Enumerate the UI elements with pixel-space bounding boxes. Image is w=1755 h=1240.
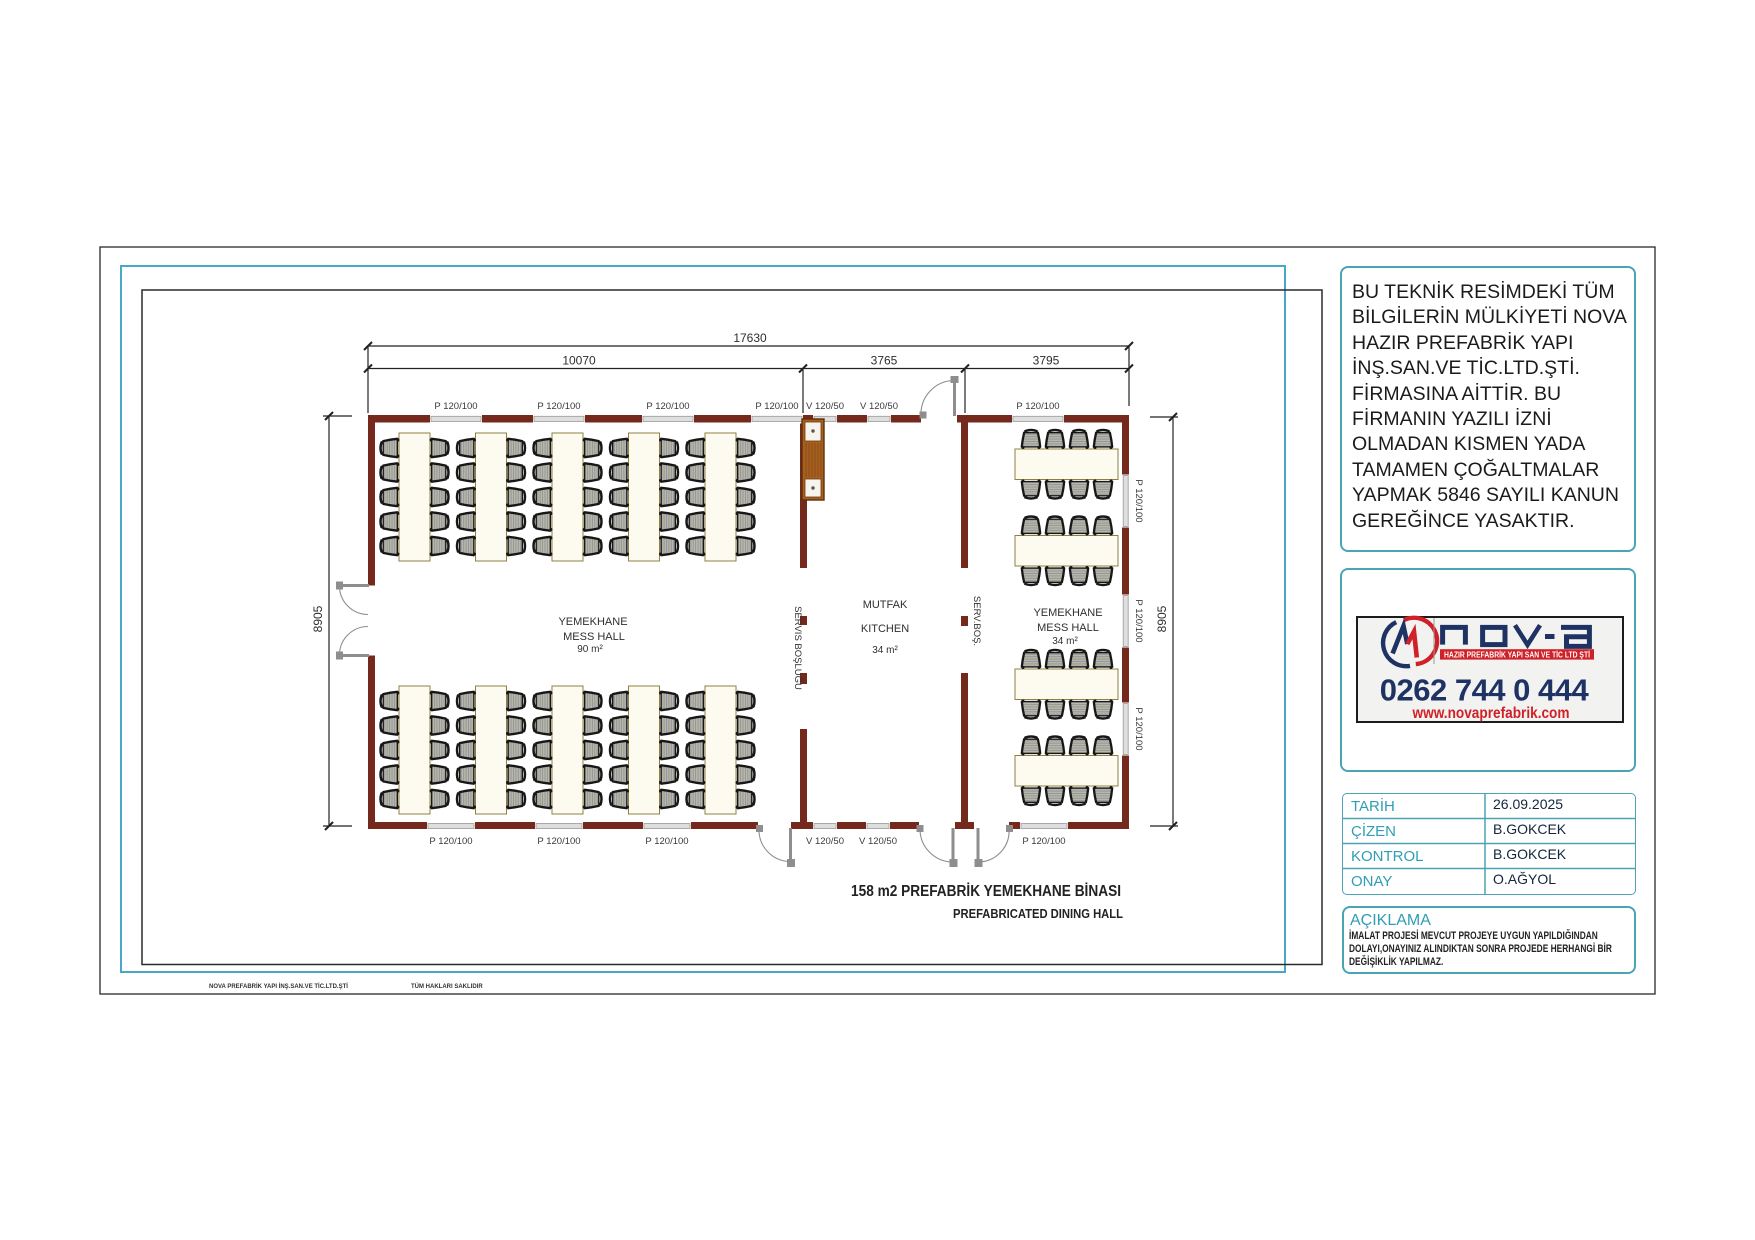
svg-text:17630: 17630 bbox=[733, 331, 767, 345]
svg-text:8905: 8905 bbox=[1155, 605, 1169, 632]
svg-text:MUTFAK: MUTFAK bbox=[863, 599, 908, 611]
svg-text:ÇİZEN: ÇİZEN bbox=[1351, 822, 1396, 840]
svg-text:P 120/100: P 120/100 bbox=[1133, 599, 1144, 642]
svg-text:3765: 3765 bbox=[871, 354, 898, 368]
svg-text:8905: 8905 bbox=[311, 605, 325, 632]
svg-text:YEMEKHANE: YEMEKHANE bbox=[1033, 607, 1102, 619]
svg-text:NOVA PREFABRİK YAPI İNŞ.SAN.VE: NOVA PREFABRİK YAPI İNŞ.SAN.VE TİC.LTD.Ş… bbox=[209, 983, 348, 990]
svg-text:10070: 10070 bbox=[562, 354, 596, 368]
svg-text:26.09.2025: 26.09.2025 bbox=[1493, 796, 1563, 812]
svg-text:YEMEKHANE: YEMEKHANE bbox=[558, 616, 627, 628]
svg-text:ONAY: ONAY bbox=[1351, 873, 1392, 890]
svg-text:MESS HALL: MESS HALL bbox=[563, 631, 625, 643]
svg-text:SERV.BOŞ.: SERV.BOŞ. bbox=[971, 596, 982, 646]
svg-text:90 m²: 90 m² bbox=[577, 644, 603, 655]
svg-text:158 m2 PREFABRİK YEMEKHANE BİN: 158 m2 PREFABRİK YEMEKHANE BİNASI bbox=[851, 882, 1121, 900]
svg-text:HAZIR PREFABRİK YAPI SAN VE Tİ: HAZIR PREFABRİK YAPI SAN VE TİC LTD ŞTİ bbox=[1444, 651, 1590, 660]
svg-text:KONTROL: KONTROL bbox=[1351, 848, 1424, 865]
svg-text:B.GOKCEK: B.GOKCEK bbox=[1493, 821, 1567, 837]
svg-text:TÜM HAKLARI SAKLIDIR: TÜM HAKLARI SAKLIDIR bbox=[411, 983, 483, 990]
svg-text:0262 744 0 444: 0262 744 0 444 bbox=[1380, 673, 1590, 708]
svg-text:V 120/50: V 120/50 bbox=[806, 401, 844, 412]
svg-text:SERVIS BOŞLUĞU: SERVIS BOŞLUĞU bbox=[792, 606, 803, 690]
svg-text:PREFABRICATED DINING HALL: PREFABRICATED DINING HALL bbox=[953, 907, 1123, 921]
svg-text:P 120/100: P 120/100 bbox=[537, 836, 580, 847]
svg-text:34 m²: 34 m² bbox=[1052, 636, 1078, 647]
svg-text:P 120/100: P 120/100 bbox=[646, 401, 689, 412]
svg-text:34 m²: 34 m² bbox=[872, 645, 898, 656]
svg-text:V 120/50: V 120/50 bbox=[859, 836, 897, 847]
svg-text:MESS HALL: MESS HALL bbox=[1037, 622, 1099, 634]
svg-text:P 120/100: P 120/100 bbox=[755, 401, 798, 412]
svg-text:www.novaprefabrik.com: www.novaprefabrik.com bbox=[1412, 705, 1570, 722]
svg-text:P 120/100: P 120/100 bbox=[537, 401, 580, 412]
svg-text:P 120/100: P 120/100 bbox=[1133, 707, 1144, 750]
svg-text:O.AĞYOL: O.AĞYOL bbox=[1493, 871, 1556, 887]
svg-text:3795: 3795 bbox=[1033, 354, 1060, 368]
svg-text:P 120/100: P 120/100 bbox=[1016, 401, 1059, 412]
svg-text:TARİH: TARİH bbox=[1351, 797, 1395, 815]
svg-text:B.GOKCEK: B.GOKCEK bbox=[1493, 846, 1567, 862]
svg-text:P 120/100: P 120/100 bbox=[1022, 836, 1065, 847]
svg-text:P 120/100: P 120/100 bbox=[1133, 479, 1144, 522]
svg-text:P 120/100: P 120/100 bbox=[429, 836, 472, 847]
svg-text:P 120/100: P 120/100 bbox=[645, 836, 688, 847]
svg-text:V 120/50: V 120/50 bbox=[860, 401, 898, 412]
svg-text:V 120/50: V 120/50 bbox=[806, 836, 844, 847]
svg-text:KITCHEN: KITCHEN bbox=[861, 623, 909, 635]
svg-text:P 120/100: P 120/100 bbox=[434, 401, 477, 412]
